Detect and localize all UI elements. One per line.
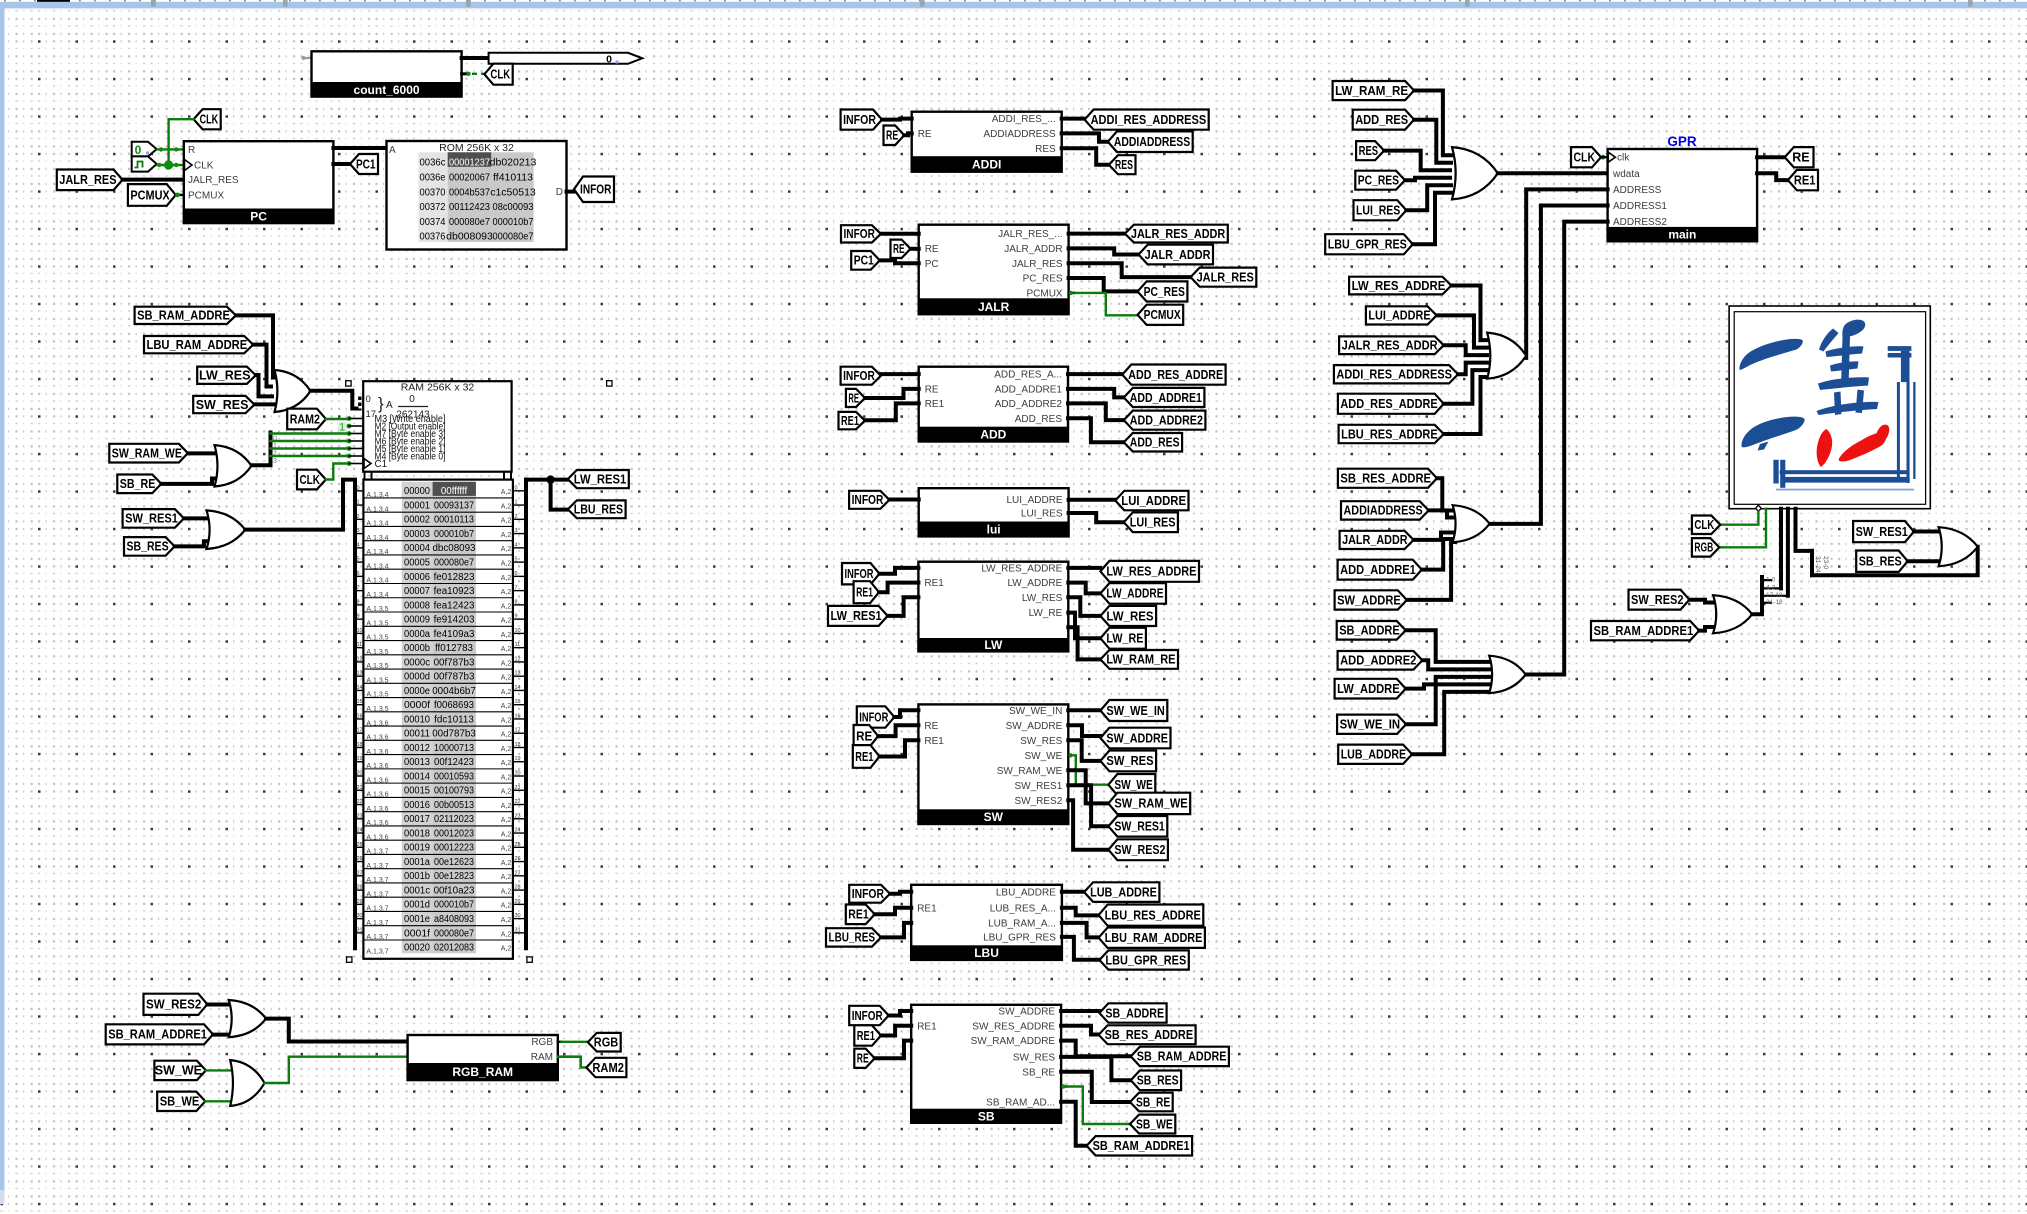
svg-text:00012223: 00012223 (434, 843, 475, 854)
svg-text:00f10a23: 00f10a23 (434, 885, 475, 896)
svg-text:LBU_GPR_RES: LBU_GPR_RES (1328, 238, 1407, 252)
svg-text:ADD_ADDRE2: ADD_ADDRE2 (995, 399, 1063, 410)
svg-text:SW_RES2: SW_RES2 (1114, 843, 1165, 857)
svg-text:LW_RES1: LW_RES1 (831, 609, 882, 623)
svg-text:GPR: GPR (1667, 134, 1697, 149)
svg-text:A,2: A,2 (501, 831, 512, 838)
svg-text:RAM2: RAM2 (290, 412, 320, 426)
svg-text:SW_RAM_WE: SW_RAM_WE (1114, 797, 1187, 811)
svg-text:0: 0 (135, 143, 142, 157)
svg-text:00ffffff: 00ffffff (441, 486, 468, 497)
svg-text:lui: lui (987, 522, 1001, 536)
svg-text:RGB: RGB (594, 1036, 618, 1050)
svg-text:A,2: A,2 (501, 546, 512, 553)
svg-text:000010b7: 000010b7 (493, 216, 534, 228)
svg-text:00012023: 00012023 (434, 828, 475, 839)
svg-text:RE1: RE1 (848, 908, 868, 922)
svg-text:PCMUX: PCMUX (130, 188, 170, 202)
svg-text:A,2: A,2 (501, 874, 512, 881)
svg-text:18: 18 (515, 742, 521, 748)
svg-text:JALR_RES_...: JALR_RES_... (998, 229, 1062, 240)
svg-text:22: 22 (515, 799, 521, 805)
svg-text:SW_RES1: SW_RES1 (1015, 781, 1063, 792)
svg-text:JALR_ADDR: JALR_ADDR (1145, 248, 1211, 262)
svg-text:00014: 00014 (404, 771, 431, 782)
svg-text:SB_ADDRE: SB_ADDRE (1105, 1006, 1164, 1020)
svg-text:RE: RE (924, 721, 938, 732)
svg-text:000080e7: 000080e7 (493, 231, 534, 243)
svg-text:LBU_RES_ADDRE: LBU_RES_ADDRE (1341, 427, 1438, 441)
svg-text:00f787b3: 00f787b3 (434, 657, 475, 668)
svg-text:ADD_ADDRE1: ADD_ADDRE1 (1130, 391, 1202, 405)
svg-text:00b00513: 00b00513 (434, 800, 475, 811)
svg-text:LW_RES_ADDRE: LW_RES_ADDRE (1106, 565, 1196, 579)
svg-text:17-10: 17-10 (1766, 592, 1783, 599)
svg-text:D: D (556, 187, 563, 198)
svg-text:16: 16 (515, 713, 521, 719)
svg-text:000080e7: 000080e7 (449, 216, 490, 228)
svg-text:A,2: A,2 (501, 803, 512, 810)
svg-text:21: 21 (357, 785, 363, 791)
svg-text:SW_RES2: SW_RES2 (1015, 796, 1063, 807)
svg-text:00019: 00019 (404, 843, 430, 854)
svg-text:PCMUX: PCMUX (1144, 308, 1182, 322)
svg-text:000010b7: 000010b7 (434, 529, 474, 540)
svg-text:LBU: LBU (974, 946, 999, 960)
svg-text:RES: RES (1115, 158, 1133, 172)
svg-text:ADD_RES_ADDRE: ADD_RES_ADDRE (1128, 368, 1223, 382)
svg-text:fe4109a3: fe4109a3 (434, 629, 475, 640)
svg-text:A,2: A,2 (501, 903, 512, 910)
svg-text:3: 3 (273, 458, 277, 465)
svg-text:A,2: A,2 (501, 532, 512, 539)
svg-text:A,2: A,2 (501, 774, 512, 781)
svg-text:23: 23 (357, 813, 363, 819)
svg-text:main: main (1668, 228, 1696, 242)
svg-text:00000: 00000 (404, 486, 431, 497)
svg-text:LW_RES: LW_RES (1106, 609, 1153, 623)
svg-text:LBU_RAM_ADDRE: LBU_RAM_ADDRE (1105, 931, 1203, 945)
svg-text:RE1: RE1 (925, 399, 945, 410)
svg-text:A,2: A,2 (501, 618, 512, 625)
svg-text:0001c: 0001c (404, 885, 430, 896)
svg-text:LW_RAM_RE: LW_RAM_RE (1335, 84, 1408, 98)
svg-text:INFOR: INFOR (580, 183, 612, 197)
svg-text:A,2: A,2 (501, 589, 512, 596)
svg-text:2: 2 (515, 514, 518, 520)
svg-text:A,2: A,2 (501, 732, 512, 739)
svg-text:3: 3 (515, 528, 518, 534)
svg-text:0036e: 0036e (420, 172, 446, 184)
svg-text:SW_RES: SW_RES (1020, 736, 1063, 747)
svg-text:4-2: 4-2 (1766, 585, 1776, 592)
svg-text:LUI_RES: LUI_RES (1356, 204, 1400, 218)
svg-text:LW_RES: LW_RES (199, 369, 250, 383)
svg-text:12: 12 (357, 656, 363, 662)
svg-text:CLK: CLK (1694, 518, 1714, 532)
svg-text:RE1: RE1 (924, 578, 944, 589)
svg-text:LW_RES1: LW_RES1 (574, 472, 627, 486)
svg-text:00008: 00008 (404, 600, 431, 611)
svg-text:ADD_RES: ADD_RES (1130, 436, 1180, 450)
svg-text:17: 17 (515, 728, 521, 734)
svg-text:PC_RES: PC_RES (1144, 285, 1185, 299)
svg-text:ADDIADDRESS: ADDIADDRESS (983, 129, 1056, 140)
svg-text:SW_RAM_WE: SW_RAM_WE (997, 766, 1063, 777)
svg-text:ADDRESS2: ADDRESS2 (1613, 217, 1667, 228)
svg-text:00374: 00374 (420, 216, 446, 228)
svg-text:LW_RES_ADDRE: LW_RES_ADDRE (981, 564, 1062, 575)
svg-text:11: 11 (357, 642, 363, 648)
svg-text:0004b537: 0004b537 (449, 186, 490, 198)
svg-text:CLK: CLK (300, 473, 320, 487)
svg-text:LBU_RAM_ADDRE: LBU_RAM_ADDRE (147, 338, 248, 352)
svg-text:SB_RAM_AD...: SB_RAM_AD... (986, 1097, 1055, 1108)
svg-text:INFOR: INFOR (843, 369, 875, 383)
svg-text:00015: 00015 (404, 786, 431, 797)
svg-text:RE1: RE1 (841, 414, 859, 428)
svg-text:A,1,3,7: A,1,3,7 (366, 948, 388, 955)
svg-text:SB_RE: SB_RE (1022, 1067, 1055, 1078)
svg-text:RES: RES (1035, 144, 1056, 155)
svg-text:0000b: 0000b (404, 643, 431, 654)
svg-text:SW_RES1: SW_RES1 (1114, 820, 1164, 834)
svg-text:0001f: 0001f (404, 928, 430, 939)
svg-text:0000f: 0000f (404, 700, 430, 711)
svg-text:RE: RE (886, 129, 898, 143)
svg-text:00010593: 00010593 (434, 771, 475, 782)
svg-text:f0068693: f0068693 (434, 700, 475, 711)
svg-text:LBU_GPR_RES: LBU_GPR_RES (1105, 953, 1186, 967)
svg-text:0000e: 0000e (404, 686, 431, 697)
svg-text:SB_WE: SB_WE (160, 1095, 200, 1109)
svg-text:27: 27 (515, 870, 521, 876)
svg-text:5: 5 (357, 557, 360, 563)
svg-text:A,2: A,2 (501, 860, 512, 867)
svg-text:00020067: 00020067 (449, 172, 490, 184)
svg-text:ADD_RES: ADD_RES (1015, 414, 1063, 425)
svg-text:ADD_RES: ADD_RES (1355, 113, 1408, 127)
svg-text:00370: 00370 (420, 186, 446, 198)
svg-text:RE: RE (1792, 151, 1809, 165)
svg-text:00f787b3: 00f787b3 (434, 672, 475, 683)
svg-text:SB_ADDRE: SB_ADDRE (1339, 624, 1400, 638)
svg-text:JALR_RES_ADDR: JALR_RES_ADDR (1342, 339, 1438, 353)
svg-text:31: 31 (515, 927, 521, 933)
svg-text:A,2: A,2 (501, 717, 512, 724)
svg-text:A,2: A,2 (501, 632, 512, 639)
svg-text:31-18: 31-18 (1766, 599, 1783, 606)
svg-text:CLK: CLK (200, 113, 219, 127)
svg-text:26: 26 (515, 856, 521, 862)
svg-text:JALR_RES_ADDR: JALR_RES_ADDR (1131, 227, 1225, 241)
svg-text:4: 4 (357, 542, 360, 548)
svg-text:RE: RE (925, 385, 939, 396)
svg-text:PC1: PC1 (356, 157, 376, 171)
svg-text:fe914203: fe914203 (434, 615, 475, 626)
svg-text:C1: C1 (375, 459, 388, 470)
svg-text:PC_RES: PC_RES (1358, 174, 1399, 188)
svg-text:00f12423: 00f12423 (434, 757, 475, 768)
svg-text:JALR_RES: JALR_RES (1197, 270, 1254, 284)
svg-text:ff410113: ff410113 (493, 172, 533, 184)
svg-text:SB_RES: SB_RES (1137, 1074, 1179, 1088)
svg-text:INFOR: INFOR (845, 567, 874, 581)
svg-text:LUI_RES: LUI_RES (1130, 516, 1176, 530)
svg-text:LW_RAM_RE: LW_RAM_RE (1106, 653, 1175, 667)
svg-text:}: } (378, 394, 384, 413)
svg-text:23: 23 (515, 813, 521, 819)
svg-text:ff012783: ff012783 (435, 643, 474, 654)
svg-text:db020213: db020213 (490, 157, 537, 169)
svg-text:7: 7 (357, 585, 360, 591)
svg-text:00002: 00002 (404, 515, 430, 526)
svg-text:0001d: 0001d (404, 900, 430, 911)
svg-text:02112023: 02112023 (434, 814, 475, 825)
svg-text:fea10923: fea10923 (434, 586, 475, 597)
svg-text:02012083: 02012083 (434, 943, 475, 954)
svg-text:LUI_RES: LUI_RES (1021, 509, 1063, 520)
svg-text:31: 31 (357, 927, 363, 933)
svg-text:20: 20 (515, 771, 521, 777)
svg-text:LBU_RES: LBU_RES (574, 503, 623, 517)
svg-text:SW_ADDRE: SW_ADDRE (1006, 721, 1063, 732)
svg-text:00011: 00011 (404, 729, 430, 740)
svg-text:LBU_ADDRE: LBU_ADDRE (996, 887, 1056, 898)
svg-text:A,2: A,2 (501, 931, 512, 938)
svg-text:ROM 256K x 32: ROM 256K x 32 (439, 142, 514, 154)
svg-text:A,2: A,2 (501, 675, 512, 682)
svg-text:19: 19 (515, 756, 521, 762)
svg-text:RE: RE (848, 391, 859, 405)
svg-text:LW_RE: LW_RE (1106, 632, 1143, 646)
svg-text:0036c: 0036c (420, 157, 446, 169)
svg-text:17: 17 (357, 728, 363, 734)
svg-text:15: 15 (357, 699, 363, 705)
svg-text:00376: 00376 (420, 231, 446, 243)
svg-text:A,2: A,2 (501, 703, 512, 710)
svg-text:6: 6 (515, 571, 518, 577)
svg-text:1-0: 1-0 (1766, 576, 1776, 583)
svg-text:00d787b3: 00d787b3 (432, 729, 476, 740)
svg-text:A: A (386, 400, 393, 411)
svg-text:PC: PC (925, 259, 939, 270)
svg-text:00100793: 00100793 (434, 786, 475, 797)
svg-text:fdc10113: fdc10113 (434, 714, 474, 725)
svg-text:A,2: A,2 (501, 946, 512, 953)
svg-text:10: 10 (515, 628, 521, 634)
svg-text:A,2: A,2 (501, 603, 512, 610)
svg-text:RE: RE (918, 129, 932, 140)
svg-text:INFOR: INFOR (844, 227, 875, 241)
svg-text:1: 1 (357, 500, 360, 506)
svg-text:0001a: 0001a (404, 857, 431, 868)
svg-text:A,2: A,2 (501, 760, 512, 767)
svg-text:SW_RES_ADDRE: SW_RES_ADDRE (972, 1021, 1055, 1032)
svg-text:INFOR: INFOR (843, 113, 876, 127)
svg-text:LBU_GPR_RES: LBU_GPR_RES (983, 933, 1056, 944)
svg-text:ADD_ADDRE1: ADD_ADDRE1 (1340, 563, 1416, 577)
svg-text:8: 8 (515, 599, 518, 605)
svg-text:ADDIADDRESS: ADDIADDRESS (1344, 504, 1423, 518)
svg-text:10: 10 (357, 628, 363, 634)
svg-text:000010b7: 000010b7 (434, 900, 474, 911)
svg-text:4: 4 (515, 542, 518, 548)
svg-text:SB_RAM_ADDRE1: SB_RAM_ADDRE1 (1093, 1139, 1190, 1153)
svg-text:SB: SB (978, 1109, 995, 1123)
svg-text:SW_RES2: SW_RES2 (1631, 593, 1684, 607)
svg-text:LUI_ADDRE: LUI_ADDRE (1121, 494, 1186, 508)
svg-text:ADDI_RES_...: ADDI_RES_... (992, 114, 1056, 125)
svg-text:0: 0 (357, 485, 360, 491)
svg-text:28: 28 (515, 885, 521, 891)
svg-text:7: 7 (515, 585, 518, 591)
svg-text:INFOR: INFOR (852, 493, 884, 507)
svg-text:00005: 00005 (404, 558, 431, 569)
svg-text:00010: 00010 (404, 714, 431, 725)
svg-text:ADDRESS: ADDRESS (1613, 185, 1662, 196)
svg-text:RE1: RE1 (856, 586, 873, 600)
svg-text:31-24: 31-24 (1814, 556, 1821, 573)
svg-text:SB_RE: SB_RE (1136, 1095, 1170, 1109)
svg-text:JALR_RES: JALR_RES (1012, 259, 1063, 270)
svg-text:0004b6b7: 0004b6b7 (432, 686, 476, 697)
svg-text:ADDIADDRESS: ADDIADDRESS (1114, 135, 1190, 149)
svg-text:SB_RES: SB_RES (1859, 555, 1902, 569)
svg-text:00004: 00004 (404, 543, 431, 554)
svg-text:1: 1 (515, 500, 518, 506)
svg-text:CLK: CLK (194, 161, 214, 172)
svg-text:SB_RES_ADDRE: SB_RES_ADDRE (1105, 1028, 1194, 1042)
svg-text:SB_RAM_ADDRE: SB_RAM_ADDRE (1137, 1050, 1227, 1064)
svg-text:RES: RES (1359, 144, 1379, 158)
svg-text:ADD_ADDRE2: ADD_ADDRE2 (1130, 413, 1203, 427)
svg-text:A,2: A,2 (501, 888, 512, 895)
svg-text:14: 14 (357, 685, 363, 691)
svg-text:00017: 00017 (404, 814, 430, 825)
svg-text:A,2: A,2 (501, 689, 512, 696)
svg-text:SW_WE: SW_WE (1025, 751, 1063, 762)
svg-text:20: 20 (357, 771, 363, 777)
svg-text:SW_RES1: SW_RES1 (1856, 525, 1908, 539)
svg-text:00093137: 00093137 (434, 500, 474, 511)
svg-text:SW_RES: SW_RES (1106, 754, 1153, 768)
svg-text:RE: RE (893, 242, 905, 256)
svg-text:SW_RES1: SW_RES1 (125, 512, 178, 526)
svg-text:A,2: A,2 (501, 789, 512, 796)
svg-text:SB_WE: SB_WE (1136, 1117, 1173, 1131)
svg-text:SB_RAM_ADDRE1: SB_RAM_ADDRE1 (108, 1028, 207, 1042)
svg-text:SW_ADDRE: SW_ADDRE (1106, 731, 1168, 745)
svg-text:00e12623: 00e12623 (434, 857, 475, 868)
svg-text:RE1: RE1 (924, 736, 944, 747)
svg-text:A,2: A,2 (501, 518, 512, 525)
svg-text:25: 25 (515, 842, 521, 848)
svg-text:A,2: A,2 (501, 575, 512, 582)
svg-text:22: 22 (357, 799, 363, 805)
svg-text:24: 24 (357, 828, 363, 834)
svg-text:RE: RE (856, 729, 872, 743)
svg-text:RGB_RAM: RGB_RAM (452, 1065, 513, 1079)
svg-text:0: 0 (515, 485, 518, 491)
svg-text:00372: 00372 (420, 201, 446, 213)
svg-text:21: 21 (515, 785, 521, 791)
svg-text:15: 15 (515, 699, 521, 705)
svg-text:SW_WE_IN: SW_WE_IN (1009, 706, 1062, 717)
svg-text:LUB_ADDRE: LUB_ADDRE (1341, 748, 1406, 762)
svg-text:13: 13 (357, 671, 363, 677)
svg-text:0000a: 0000a (404, 629, 431, 640)
svg-text:A: A (389, 145, 396, 156)
svg-text:SW_RAM_ADDRE: SW_RAM_ADDRE (971, 1036, 1056, 1047)
svg-text:SW_ADDRE: SW_ADDRE (1337, 593, 1401, 607)
svg-text:5: 5 (515, 557, 518, 563)
svg-text:0001b: 0001b (404, 871, 431, 882)
svg-text:SW_RES: SW_RES (1013, 1053, 1056, 1064)
svg-text:SB_RAM_ADDRE1: SB_RAM_ADDRE1 (1594, 624, 1694, 638)
svg-text:00001237: 00001237 (449, 157, 490, 169)
svg-text:INFOR: INFOR (852, 887, 884, 901)
svg-text:23-0: 23-0 (1822, 556, 1829, 569)
svg-text:12: 12 (515, 656, 521, 662)
svg-text:18: 18 (357, 742, 363, 748)
svg-text:RGB: RGB (1694, 541, 1713, 555)
svg-text:29: 29 (357, 899, 363, 905)
svg-text:A,2: A,2 (501, 817, 512, 824)
svg-text:30: 30 (515, 913, 521, 919)
svg-text:ADD_RES_A...: ADD_RES_A... (994, 370, 1062, 381)
svg-text:00006: 00006 (404, 572, 431, 583)
svg-text:SW_WE_IN: SW_WE_IN (1340, 718, 1401, 732)
svg-text:SB_RES: SB_RES (127, 540, 169, 554)
svg-text:SW: SW (984, 810, 1004, 824)
svg-text:ADD_RES_ADDRE: ADD_RES_ADDRE (1340, 397, 1437, 411)
svg-text:ADD: ADD (980, 428, 1006, 442)
svg-text:RE1: RE1 (855, 750, 873, 764)
svg-text:ADD_ADDRE1: ADD_ADDRE1 (995, 385, 1063, 396)
svg-text:SB_RAM_ADDRE: SB_RAM_ADDRE (137, 309, 230, 323)
svg-text:3: 3 (357, 528, 360, 534)
svg-text:30: 30 (357, 913, 363, 919)
svg-text:0001e: 0001e (404, 914, 431, 925)
svg-text:LW_ADDRE: LW_ADDRE (1337, 682, 1400, 696)
svg-text:ADDRESS1: ADDRESS1 (1613, 201, 1667, 212)
svg-text:13: 13 (515, 671, 521, 677)
svg-text:JALR_RES: JALR_RES (188, 175, 239, 186)
svg-text:LUI_ADDRE: LUI_ADDRE (1006, 495, 1062, 506)
svg-text:00001: 00001 (404, 500, 430, 511)
svg-text:clk: clk (1617, 153, 1630, 164)
svg-text:00112423: 00112423 (449, 201, 490, 213)
svg-text:RE1: RE1 (917, 903, 937, 914)
svg-text:11: 11 (515, 642, 521, 648)
svg-text:14: 14 (515, 685, 521, 691)
svg-text:000080e7: 000080e7 (434, 928, 474, 939)
svg-text:00010113: 00010113 (434, 515, 475, 526)
svg-text:00020: 00020 (404, 943, 431, 954)
svg-text:PC: PC (250, 209, 267, 223)
svg-text:0000d: 0000d (404, 672, 430, 683)
svg-text:SB_RE: SB_RE (120, 477, 156, 491)
svg-text:SW_RES2: SW_RES2 (146, 998, 201, 1012)
svg-text:0: 0 (366, 394, 371, 405)
svg-text:SB_RES_ADDRE: SB_RES_ADDRE (1340, 472, 1431, 486)
svg-text:0: 0 (409, 394, 415, 405)
svg-text:A,2: A,2 (501, 846, 512, 853)
svg-text:RE1: RE1 (917, 1021, 937, 1032)
svg-text:LUB_RAM_A...: LUB_RAM_A... (988, 919, 1056, 930)
svg-text:SW_RES: SW_RES (196, 398, 249, 412)
